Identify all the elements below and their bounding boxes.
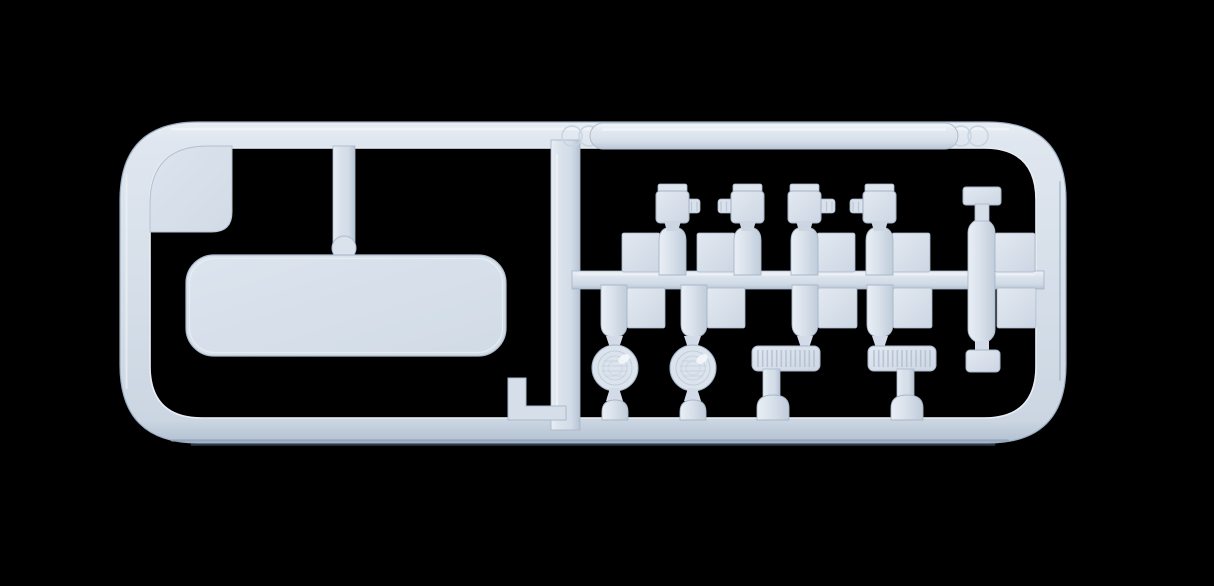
square-pad-part-c2 [707,288,745,328]
square-pad-part-a2 [697,233,735,272]
headlight-lens-part-2 [670,345,716,391]
grille-2-stem [897,369,914,397]
tall-pill-part-5 [968,219,995,343]
square-pad-part-a1 [622,233,660,272]
square-pad-part-c3 [818,288,857,328]
bottle-part-4 [866,227,893,275]
square-pad-part-c1 [627,288,665,328]
square-pad-part-c5 [997,288,1036,328]
long-rod-part [590,123,958,149]
panel-feed-stem [333,146,355,248]
runner-stub-2 [680,400,706,420]
bottle-part-2 [734,227,761,275]
square-pad-part-a4 [892,233,930,272]
sprue-photo-canvas [0,0,1214,586]
periscope-head-1-block [656,191,689,223]
periscope-head-3-block [788,191,821,223]
square-pad-part-c4 [893,288,932,328]
small-pad-part [966,350,1000,372]
periscope-head-2-block [731,191,764,223]
headlight-lens-part-1 [592,345,638,391]
square-pad-part-a5 [995,233,1035,272]
hanging-pill-part-1 [601,285,627,337]
windshield-panel-part [186,255,506,356]
grille-1-stem [763,369,780,397]
runner-stub-1 [602,400,628,420]
t-post-part-stem [975,204,989,221]
bottle-part-3 [791,227,818,275]
runner-stub-4 [891,395,923,420]
sprue-photo [0,0,1214,586]
square-pad-part-a3 [817,233,855,272]
hanging-pill-part-2 [681,285,707,337]
hanging-pill-part-3 [792,285,818,337]
hanging-pill-part-4 [867,285,893,337]
t-post-part-bar [963,187,1001,205]
periscope-head-4-block [863,191,896,223]
runner-stub-3 [757,395,789,420]
bottle-part-1 [659,227,686,275]
